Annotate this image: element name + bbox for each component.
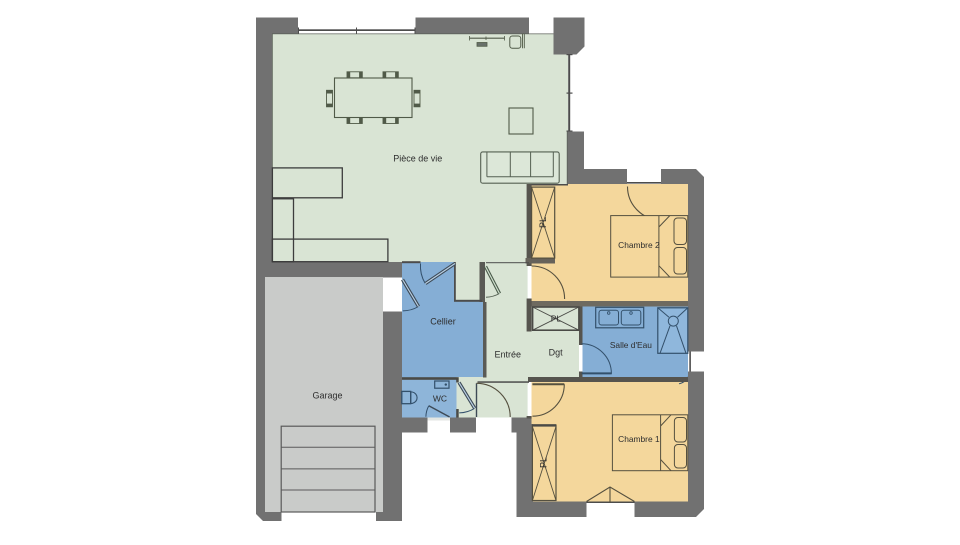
svg-text:Pièce de vie: Pièce de vie: [393, 153, 442, 163]
svg-text:WC: WC: [433, 393, 447, 403]
svg-text:Dgt: Dgt: [549, 347, 564, 357]
svg-text:Chambre 1: Chambre 1: [618, 434, 660, 444]
svg-text:PL: PL: [551, 313, 562, 323]
svg-text:Cellier: Cellier: [430, 316, 456, 326]
svg-text:Salle d'Eau: Salle d'Eau: [610, 340, 652, 350]
svg-text:PL: PL: [538, 217, 548, 228]
svg-text:Entrée: Entrée: [495, 349, 522, 359]
svg-text:Garage: Garage: [312, 390, 342, 400]
svg-text:PL: PL: [538, 457, 548, 468]
svg-text:Chambre 2: Chambre 2: [618, 240, 660, 250]
